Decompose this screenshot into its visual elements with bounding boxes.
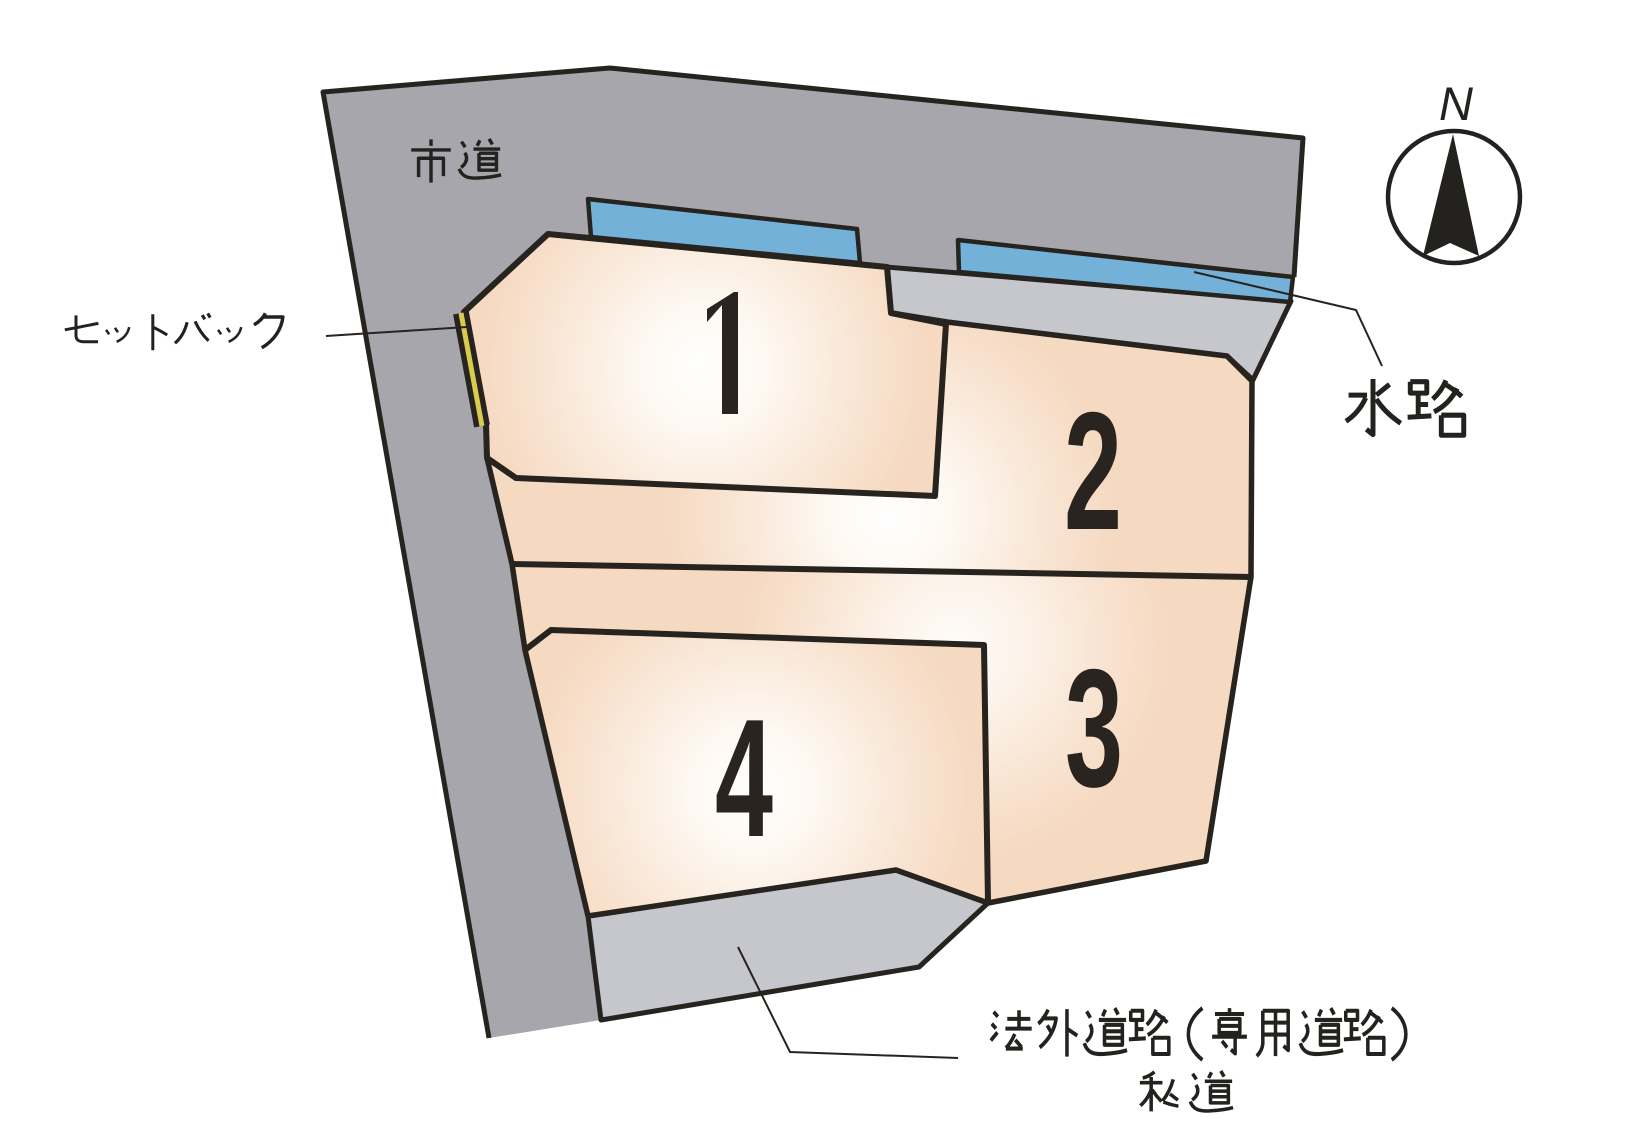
svg-text:2: 2 [1064,376,1122,565]
svg-text:3: 3 [1065,633,1123,822]
svg-text:N: N [1439,77,1473,130]
svg-text:4: 4 [715,683,773,872]
